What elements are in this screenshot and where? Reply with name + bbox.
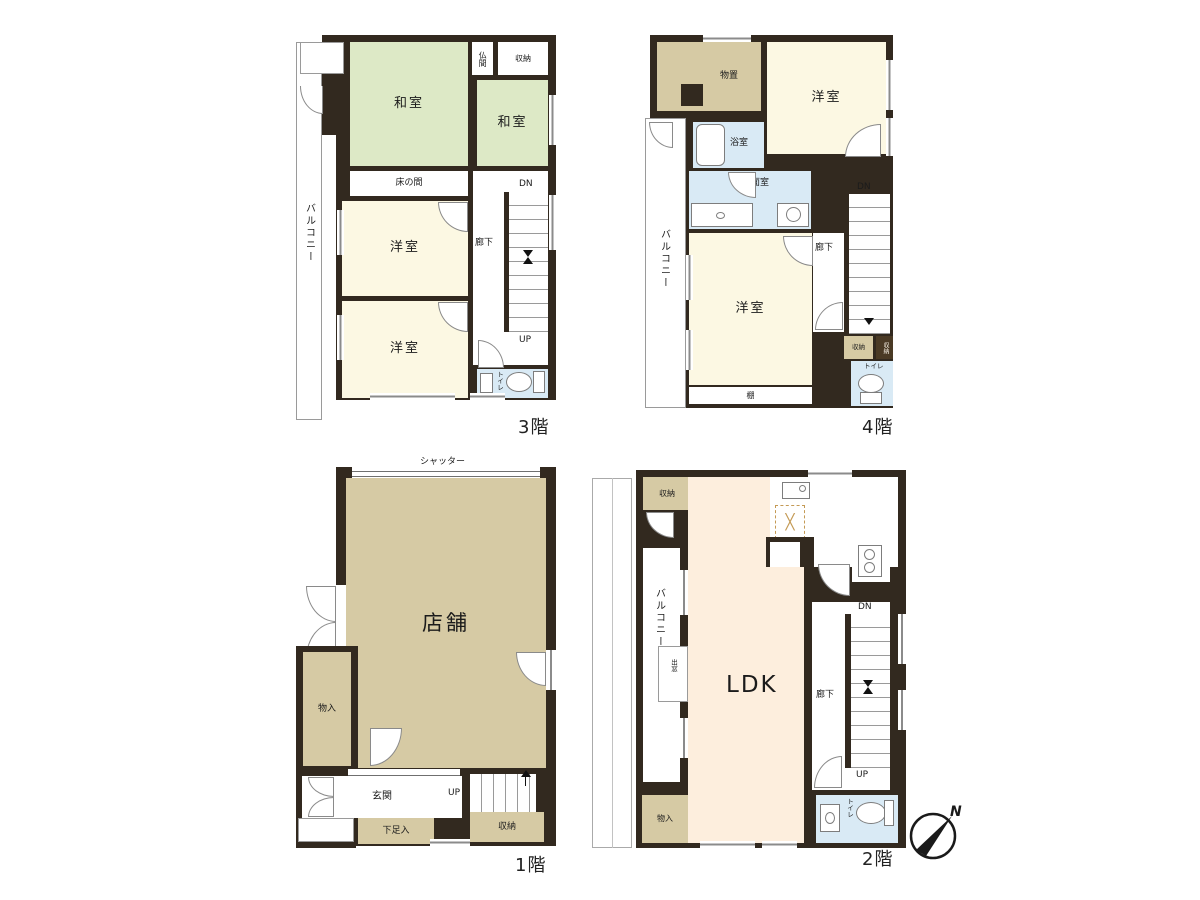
f2-kitchen-faucet bbox=[799, 485, 806, 492]
f4-vanity-sink bbox=[716, 212, 725, 219]
f3-balcony-closet bbox=[300, 42, 344, 74]
f2-kitchen-sink bbox=[782, 482, 810, 499]
f4-roka-label: 廊下 bbox=[815, 243, 833, 253]
f2-window bbox=[808, 470, 852, 477]
f3-shuno-label: 収納 bbox=[515, 54, 531, 63]
f3-stairs-wall bbox=[504, 192, 509, 332]
f4-yokushitsu-label: 浴室 bbox=[730, 138, 748, 148]
f3-window bbox=[470, 393, 505, 400]
f1-tenpo-label: 店舗 bbox=[422, 611, 470, 635]
f2-room-monoire: 物入 bbox=[642, 795, 688, 843]
f4-toilet-tank bbox=[860, 392, 882, 404]
f4-toilet-bowl bbox=[858, 374, 884, 393]
f2-window bbox=[762, 841, 797, 848]
f1-room-tenpo: 店舗 bbox=[346, 478, 546, 768]
f1-floor-label: 1階 bbox=[515, 856, 546, 877]
f2-burner bbox=[864, 549, 875, 560]
f2-toilet-bowl bbox=[856, 802, 886, 824]
f4-window bbox=[886, 118, 893, 156]
f3-room-butsuma: 仏間 bbox=[472, 42, 493, 75]
f3-window bbox=[337, 210, 344, 255]
f3-toilet-bowl bbox=[506, 372, 532, 392]
f2-floor-label: 2階 bbox=[862, 850, 893, 871]
f1-room-geta-bako: 下足入 bbox=[358, 818, 434, 844]
f4-yoshitsu-a-label: 洋室 bbox=[811, 91, 841, 106]
f3-floor-label: 3階 bbox=[518, 418, 549, 439]
compass-north-label: N bbox=[950, 804, 962, 820]
f4-tana-label: 棚 bbox=[747, 391, 755, 400]
f2-toilet-label: トイレ bbox=[845, 798, 852, 818]
f2-window bbox=[680, 718, 688, 758]
f3-window bbox=[337, 315, 344, 360]
f2-roka-label: 廊下 bbox=[816, 690, 834, 700]
f4-washer-drum bbox=[786, 207, 801, 222]
f4-window bbox=[686, 330, 693, 370]
f2-room-shuno: 収納 bbox=[643, 477, 691, 510]
f1-window bbox=[546, 650, 556, 690]
f1-shutter-label: シャッター bbox=[420, 457, 465, 467]
f4-room-monooki: 物置 bbox=[657, 42, 761, 111]
f1-opening bbox=[348, 769, 460, 776]
f4-window bbox=[703, 35, 751, 42]
f3-window bbox=[549, 195, 556, 250]
f4-window bbox=[886, 60, 893, 110]
f2-stairs-wall bbox=[845, 614, 851, 768]
f4-toilet-label: トイレ bbox=[864, 363, 884, 370]
f4-balcony-label: バルコニー bbox=[658, 229, 670, 289]
f4-stairs bbox=[849, 194, 890, 334]
f3-balcony-label: バルコニー bbox=[303, 203, 315, 263]
f3-toilet-label: トイレ bbox=[495, 371, 502, 391]
f3-up-label: UP bbox=[519, 335, 531, 345]
f3-roka-label: 廊下 bbox=[475, 238, 493, 248]
f4-floor-label: 4階 bbox=[862, 418, 893, 439]
f2-burner bbox=[864, 562, 875, 573]
f3-window bbox=[370, 393, 455, 400]
f1-room-monoire: 物入 bbox=[303, 652, 351, 766]
f3-stairs-updown-arrow-icon bbox=[523, 250, 533, 264]
f2-toilet-sink-bowl bbox=[825, 812, 835, 824]
f3-dn-label: DN bbox=[519, 179, 533, 189]
f3-washitsu-small-label: 和室 bbox=[497, 116, 527, 131]
f3-toilet-tank bbox=[533, 371, 545, 393]
f3-toilet-sink bbox=[480, 373, 493, 393]
f1-window bbox=[430, 839, 470, 846]
compass-icon: N bbox=[906, 802, 966, 864]
f2-bay-window: 出窓 bbox=[658, 646, 688, 702]
f3-washitsu-large-label: 和室 bbox=[394, 97, 424, 112]
f1-stairs-up-arrow-icon bbox=[521, 770, 531, 777]
f2-ldk-label: LDK bbox=[726, 672, 778, 698]
f4-balcony: バルコニー bbox=[645, 118, 686, 408]
f2-window bbox=[898, 614, 906, 664]
f3-room-tokonoma: 床の間 bbox=[350, 171, 468, 196]
f2-refrigerator-space: ╳ bbox=[775, 505, 805, 539]
f4-shuno-b-label: 収納 bbox=[881, 342, 888, 354]
f4-dn-label: DN bbox=[857, 182, 871, 192]
f3-tokonoma-label: 床の間 bbox=[395, 178, 422, 188]
f1-stairs bbox=[470, 774, 536, 812]
f3-room-washitsu-small: 和室 bbox=[477, 80, 548, 166]
f4-bathtub bbox=[696, 124, 725, 166]
f1-up-label: UP bbox=[448, 788, 460, 798]
f2-stairs-updown-arrow-icon bbox=[863, 680, 873, 694]
f2-window bbox=[680, 570, 688, 615]
f2-up-label: UP bbox=[856, 770, 868, 780]
f3-butsuma-label: 仏間 bbox=[478, 51, 487, 67]
f3-window bbox=[549, 95, 556, 145]
f3-room-washitsu-large: 和室 bbox=[350, 42, 468, 166]
f1-shutter-line bbox=[352, 471, 542, 477]
f2-shuno-label: 収納 bbox=[659, 489, 675, 498]
f4-room-shuno-a: 収納 bbox=[844, 336, 873, 359]
f3-yoshitsu-a-label: 洋室 bbox=[390, 241, 420, 256]
f4-pillar bbox=[681, 84, 703, 106]
f2-balcony-label: バルコニー bbox=[653, 588, 665, 648]
f1-room-shuno: 収納 bbox=[470, 812, 544, 842]
f2-window bbox=[898, 690, 906, 730]
f4-yoshitsu-b-label: 洋室 bbox=[735, 302, 765, 317]
f1-porch-step bbox=[298, 818, 354, 842]
f4-room-tana: 棚 bbox=[689, 387, 812, 404]
f2-toilet-tank bbox=[884, 800, 894, 826]
f2-dn-label: DN bbox=[858, 602, 872, 612]
f4-stairs-wall bbox=[844, 194, 849, 334]
f2-window bbox=[700, 841, 755, 848]
f4-stairs-down-arrow-icon bbox=[864, 318, 874, 325]
f2-counter-end bbox=[770, 542, 800, 567]
f1-genkan-label: 玄関 bbox=[372, 791, 392, 803]
f1-door-arc bbox=[306, 586, 336, 622]
f1-geta-bako-label: 下足入 bbox=[382, 826, 409, 836]
f4-room-shuno-b: 収納 bbox=[876, 336, 893, 359]
f2-demado-label: 出窓 bbox=[669, 659, 676, 672]
f2-roof-line bbox=[612, 478, 613, 848]
f3-yoshitsu-b-label: 洋室 bbox=[390, 342, 420, 357]
floor-plan-sheet: バルコニー 和室 仏間 収納 和室 床の間 洋室 洋室 廊下 DN UP トイレ… bbox=[0, 0, 1200, 900]
f4-monooki-label: 物置 bbox=[720, 71, 738, 81]
f1-monoire-label: 物入 bbox=[318, 704, 336, 714]
f1-stairs-arrow-line bbox=[525, 777, 526, 786]
f4-window bbox=[686, 255, 693, 300]
f3-room-shuno: 収納 bbox=[498, 42, 548, 75]
f4-shuno-a-label: 収納 bbox=[852, 344, 865, 351]
f2-monoire-label: 物入 bbox=[657, 814, 673, 823]
f1-shuno-label: 収納 bbox=[498, 822, 516, 832]
